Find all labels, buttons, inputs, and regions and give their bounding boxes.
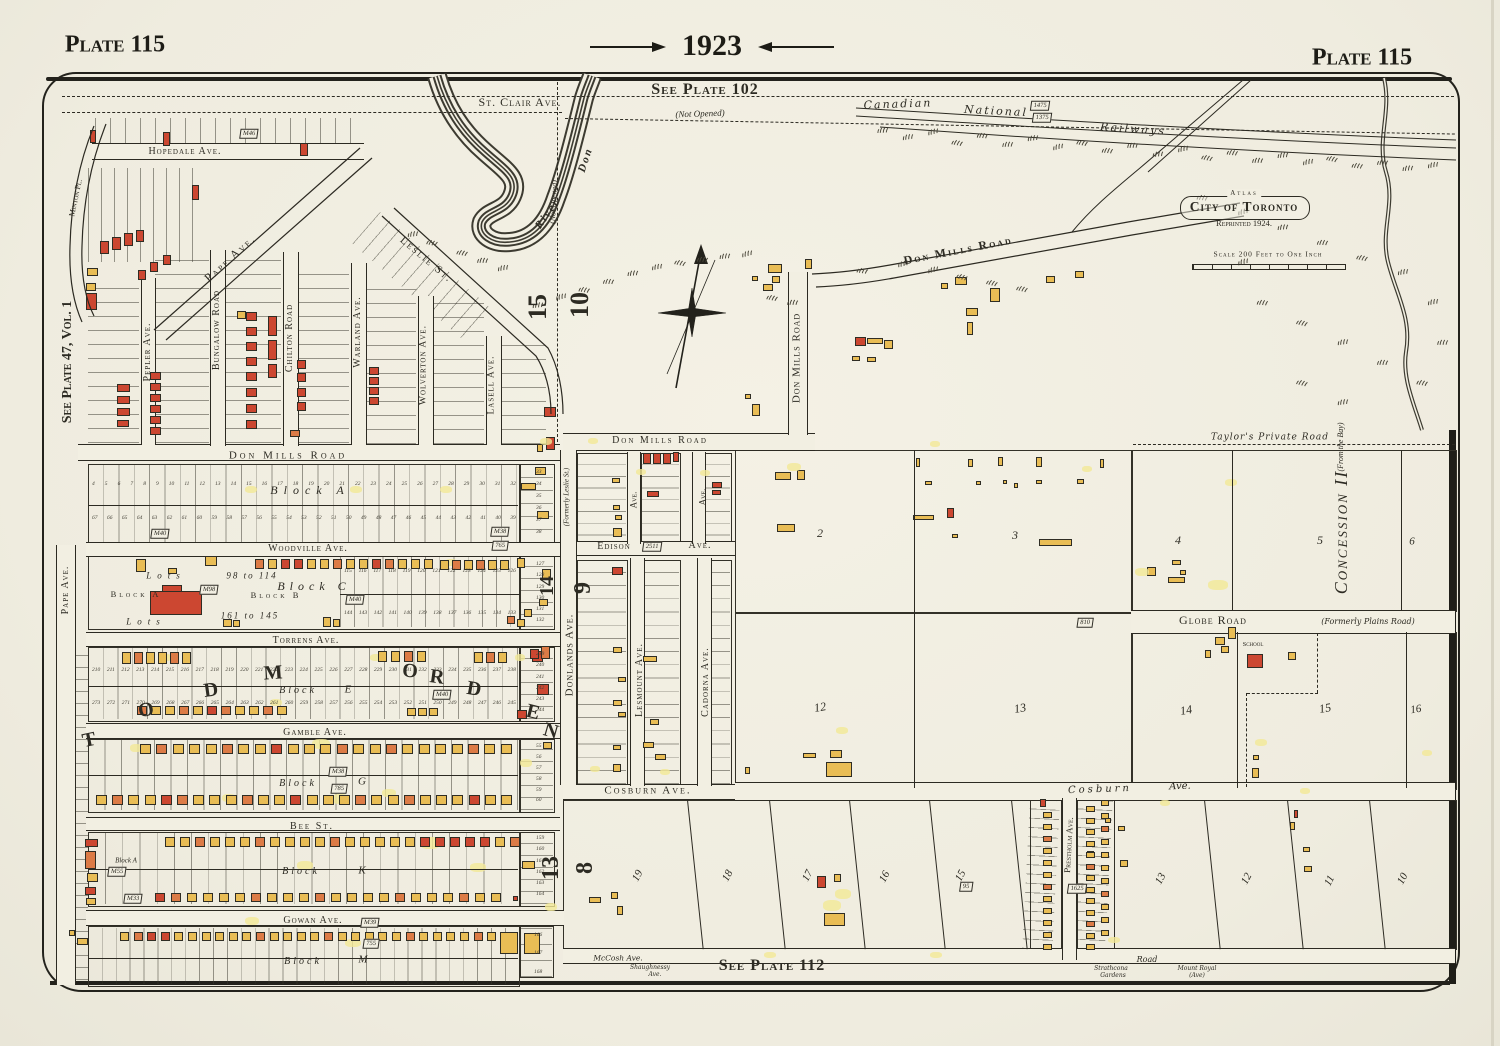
building-r <box>513 896 518 901</box>
marsh-tuft-icon <box>1053 143 1064 150</box>
building-r <box>117 384 130 392</box>
lot-number: 230 <box>389 668 397 674</box>
lot-number: 242 <box>536 686 544 692</box>
lot-number: 55 <box>536 744 542 750</box>
lot-number: 24 <box>386 482 392 488</box>
todmorden-letter: M <box>263 662 283 683</box>
building-y <box>1086 841 1095 847</box>
building-r <box>712 482 722 488</box>
globe-road-formerly-note: (Formerly Plains Road) <box>1321 618 1415 626</box>
compass-star <box>688 288 696 337</box>
building-y <box>258 795 269 805</box>
building-y <box>925 481 932 485</box>
lot-number: 49 <box>361 516 367 522</box>
lot-number: 166 <box>534 933 542 939</box>
block-outline <box>704 453 732 549</box>
marsh-tuft-icon <box>1278 152 1289 158</box>
building-o <box>134 652 143 664</box>
lot-number: 66 <box>107 516 113 522</box>
building-y <box>1101 800 1109 806</box>
building-o <box>177 795 188 805</box>
building-y <box>235 706 245 715</box>
lot-number: 26 <box>417 482 423 488</box>
building-y <box>333 619 340 627</box>
street-label-don-mills-road-center: Don Mills Road <box>612 436 708 446</box>
lot-number: 219 <box>225 668 233 674</box>
plan-number-15: 15 <box>525 294 551 320</box>
building-y <box>165 706 175 715</box>
street-label-cosburn-ave-west: Cosburn Ave. <box>604 786 691 797</box>
building-r <box>161 795 172 805</box>
building-y <box>1086 875 1095 881</box>
lot-number: 11 <box>184 482 189 488</box>
building-p <box>1160 800 1170 806</box>
plan-marker-box: 1475 <box>1030 101 1050 111</box>
building-r <box>246 404 257 413</box>
building-o <box>333 559 342 569</box>
building-r <box>465 837 475 847</box>
field-number: 6 <box>1409 537 1415 548</box>
building-y <box>69 930 75 936</box>
building-y <box>824 913 845 926</box>
road-label: Road <box>1137 956 1158 964</box>
building-y <box>613 505 620 510</box>
building-y <box>1043 920 1052 926</box>
building-r <box>297 360 306 369</box>
building-y <box>485 795 496 805</box>
building-p <box>836 727 848 734</box>
lot-number: 254 <box>374 701 382 707</box>
field-number: 4 <box>1175 534 1181 546</box>
building-r <box>1294 810 1298 818</box>
building-y <box>1086 898 1095 904</box>
lot-number: 23 <box>370 482 376 488</box>
lot-number: 245 <box>508 701 516 707</box>
building-r <box>268 340 277 360</box>
building-y <box>613 745 621 750</box>
lot-number: 15 <box>246 482 252 488</box>
lot-number-row: 555657585960 <box>536 744 542 804</box>
building-r <box>271 744 282 754</box>
building-r <box>450 837 460 847</box>
building-y <box>268 559 277 569</box>
building-y <box>288 744 299 754</box>
building-y <box>967 322 973 335</box>
building-y <box>941 283 948 289</box>
todmorden-letter: O <box>402 660 419 681</box>
building-y <box>378 932 387 941</box>
lot-number: 261 <box>270 701 278 707</box>
building-y <box>1101 852 1109 858</box>
building-y <box>277 706 287 715</box>
building-y <box>390 837 400 847</box>
building-y <box>913 515 934 520</box>
lot-number: 58 <box>226 516 232 522</box>
lot-number-row: 2102112122132142152162172182192202212222… <box>92 668 516 674</box>
building-o <box>330 837 340 847</box>
building-p <box>590 766 600 772</box>
lot-number: 28 <box>448 482 454 488</box>
building-y <box>242 932 251 941</box>
building-y <box>501 795 512 805</box>
block-g-label: Block <box>279 779 317 789</box>
lot-number-row: 115116117118119120121122123124125126 <box>344 569 516 575</box>
plan-marker-box: 755 <box>362 939 379 949</box>
stream-east <box>1383 78 1422 430</box>
lot-number: 54 <box>286 516 292 522</box>
lot-number: 7 <box>130 482 133 488</box>
lot-number: 38 <box>536 530 542 536</box>
lot-number: 120 <box>417 569 425 575</box>
building-y <box>1118 826 1125 831</box>
lots-label: Lots <box>146 572 186 581</box>
plan-marker-box: 95 <box>959 882 973 892</box>
building-y <box>146 652 155 664</box>
street-label-pape-ave-south: Pape Ave. <box>61 566 71 615</box>
marsh-tuft-icon <box>878 128 888 133</box>
block-e-label: Block <box>279 686 317 696</box>
building-y <box>1043 824 1052 830</box>
see-plate-47: See Plate 47, Vol. 1 <box>61 301 75 423</box>
building-y <box>460 932 469 941</box>
building-y <box>650 719 659 725</box>
building-y <box>347 893 357 902</box>
lot-number: 246 <box>493 701 501 707</box>
building-o <box>85 851 96 869</box>
lot-number: 134 <box>493 611 501 617</box>
building-o <box>179 706 189 715</box>
building-r <box>161 932 170 941</box>
building-y <box>238 744 249 754</box>
building-y <box>1101 839 1109 845</box>
lot-number-row: 2732722712702692682672662652642632622612… <box>92 701 516 707</box>
building-y <box>613 647 622 653</box>
see-plate-102: See Plate 102 <box>651 82 758 98</box>
building-y <box>1303 847 1310 852</box>
plan-number-14: 14 <box>537 576 557 596</box>
building-p <box>588 438 598 444</box>
lot-grid <box>367 276 416 444</box>
boundary-line <box>88 775 518 776</box>
building-r <box>480 837 490 847</box>
building-r <box>150 427 161 435</box>
lot-number: 56 <box>536 755 542 761</box>
building-o <box>1043 884 1052 890</box>
marsh-tuft-icon <box>603 279 613 284</box>
building-y <box>615 515 622 520</box>
building-p <box>1225 479 1237 486</box>
todmorden-letter: D <box>202 679 219 701</box>
lot-number: 143 <box>359 611 367 617</box>
building-y <box>235 893 245 902</box>
building-y <box>320 744 331 754</box>
lot-number: 133 <box>508 611 516 617</box>
dashed-boundary-line <box>1246 693 1247 787</box>
marsh-tuft-icon <box>1102 148 1113 154</box>
lot-number: 229 <box>374 668 382 674</box>
building-y <box>419 932 428 941</box>
block-m-label: Block <box>284 957 322 967</box>
building-y <box>990 288 1000 302</box>
street-label-mccosh-ave: McCosh Ave. <box>593 954 642 962</box>
building-r <box>1247 654 1263 668</box>
lot-number: 45 <box>421 516 427 522</box>
building-y <box>618 712 626 717</box>
lot-number: 247 <box>478 701 486 707</box>
building-p <box>1135 568 1149 576</box>
lot-number: 127 <box>536 562 544 568</box>
building-y <box>955 277 967 285</box>
building-y <box>443 893 453 902</box>
lot-number: 31 <box>495 482 501 488</box>
boundary-line <box>340 594 520 595</box>
plan-marker-box: M98 <box>199 585 219 595</box>
lot-number: 235 <box>463 668 471 674</box>
compass-star <box>658 308 726 317</box>
building-y <box>1100 459 1104 468</box>
building-y <box>613 764 621 772</box>
lot-number: 255 <box>359 701 367 707</box>
building-y <box>1086 806 1095 812</box>
lot-number: 8 <box>143 482 146 488</box>
building-p <box>245 917 259 925</box>
dashed-boundary-line <box>565 118 1455 135</box>
building-o <box>315 893 325 902</box>
building-y <box>613 700 622 706</box>
building-y <box>267 893 277 902</box>
building-r <box>246 327 257 336</box>
lot-number: 25 <box>402 482 408 488</box>
marsh-tuft-icon <box>1357 255 1368 262</box>
building-y <box>1086 852 1095 858</box>
building-y <box>1043 860 1052 866</box>
building-r <box>643 453 651 464</box>
building-o <box>156 744 167 754</box>
building-r <box>117 396 130 404</box>
lot-number: 130 <box>536 596 544 602</box>
building-y <box>498 652 507 663</box>
building-y <box>612 478 620 483</box>
marsh-tuft-icon <box>1428 162 1439 169</box>
marsh-tuft-icon <box>928 266 939 273</box>
street-label-minton-pl: Minton Pl. <box>68 179 84 218</box>
marsh-tuft-icon <box>628 270 639 276</box>
building-y <box>1036 457 1042 467</box>
building-o <box>486 652 495 663</box>
building-y <box>165 837 175 847</box>
building-p <box>1082 466 1092 472</box>
lot-number: 139 <box>418 611 426 617</box>
building-y <box>320 559 329 569</box>
building-r <box>297 373 306 382</box>
building-o <box>337 744 348 754</box>
lot-number: 240 <box>536 663 544 669</box>
lot-number-row: 333435363738 <box>536 470 542 536</box>
field-number: 5 <box>1317 534 1323 546</box>
lots-range-161-145: 161 to 145 <box>221 612 280 621</box>
building-y <box>1086 829 1095 835</box>
building-y <box>371 795 382 805</box>
building-y <box>189 744 200 754</box>
lot-number: 63 <box>152 516 158 522</box>
building-y <box>193 795 204 805</box>
street-label-don-mills-road-west: Don Mills Road <box>229 451 347 462</box>
lot-number: 266 <box>196 701 204 707</box>
boundary-line <box>914 450 915 612</box>
marsh-tuft-icon <box>1338 399 1349 405</box>
building-y <box>180 837 190 847</box>
lot-number: 227 <box>344 668 352 674</box>
stream-east <box>1383 78 1422 430</box>
block-k-letter: K <box>358 866 365 877</box>
building-o <box>355 795 366 805</box>
lot-number: 119 <box>403 569 411 575</box>
building-y <box>120 932 129 941</box>
building-r <box>663 453 671 464</box>
plan-marker-box: M39 <box>360 918 380 928</box>
marsh-tuft-icon <box>1317 240 1327 245</box>
lots-label: Lots <box>126 618 166 627</box>
building-p <box>470 863 486 872</box>
building-r <box>150 394 161 402</box>
lot-number: 61 <box>182 516 188 522</box>
lot-number: 265 <box>211 701 219 707</box>
building-y <box>274 795 285 805</box>
building-y <box>205 556 217 566</box>
building-y <box>1043 848 1052 854</box>
building-p <box>515 654 525 661</box>
building-y <box>1288 652 1296 660</box>
building-y <box>484 744 495 754</box>
building-y <box>219 893 229 902</box>
lot-number: 268 <box>166 701 174 707</box>
street-label-gowan-ave: Gowan Ave. <box>283 916 342 926</box>
building-y <box>1043 896 1052 902</box>
lot-number: 232 <box>419 668 427 674</box>
marsh-tuft-icon <box>1128 143 1138 148</box>
marsh-tuft-icon <box>1378 360 1388 365</box>
building-y <box>96 795 107 805</box>
lot-number: 217 <box>196 668 204 674</box>
building-y <box>353 744 364 754</box>
building-o <box>221 706 231 715</box>
building-r <box>150 416 161 424</box>
street-label-woodville-ave: Woodville Ave. <box>268 544 348 554</box>
building-y <box>968 459 973 467</box>
building-y <box>1043 932 1052 938</box>
lot-number: 167 <box>534 951 542 957</box>
building-o <box>171 893 181 902</box>
building-y <box>522 861 535 869</box>
lot-number: 271 <box>122 701 130 707</box>
lot-number: 35 <box>536 494 542 500</box>
building-r <box>100 241 109 254</box>
building-y <box>475 893 485 902</box>
building-o <box>507 616 515 624</box>
building-y <box>297 932 306 941</box>
block-g-letter: G <box>358 777 366 788</box>
lot-number: 121 <box>432 569 440 575</box>
building-o <box>222 744 233 754</box>
todmorden-letter: O <box>137 699 156 721</box>
building-r <box>147 932 156 941</box>
cartouche-title: City of Toronto <box>1190 199 1299 215</box>
building-y <box>86 898 96 905</box>
lot-number: 258 <box>315 701 323 707</box>
lot-number: 52 <box>316 516 322 522</box>
lot-grid <box>502 338 546 444</box>
building-o <box>459 893 469 902</box>
building-r <box>544 407 556 417</box>
building-y <box>182 652 191 664</box>
boundary-line <box>914 612 915 788</box>
building-r <box>712 490 721 495</box>
marsh-tuft-icon <box>720 253 731 259</box>
building-r <box>162 585 182 592</box>
building-r <box>136 230 144 242</box>
marsh-tuft-icon <box>1178 145 1189 152</box>
building-y <box>209 795 220 805</box>
block-outline <box>735 612 1133 790</box>
building-y <box>830 750 842 758</box>
building-r <box>112 237 121 250</box>
lot-number: 34 <box>536 482 542 488</box>
building-o <box>404 795 415 805</box>
street-label-bee-st: Bee St. <box>290 822 334 832</box>
building-r <box>150 405 161 413</box>
block-outline <box>563 800 1457 950</box>
building-y <box>206 744 217 754</box>
lot-number: 33 <box>536 470 542 476</box>
building-r <box>420 837 430 847</box>
lot-number: 47 <box>391 516 397 522</box>
building-y <box>543 742 552 749</box>
boundary-line <box>1401 450 1402 610</box>
lot-number: 262 <box>255 701 263 707</box>
marsh-tuft-icon <box>1338 339 1349 345</box>
marsh-tuft-icon <box>1028 135 1039 141</box>
street-label-edison-ave: Edison <box>597 542 631 552</box>
building-y <box>351 932 360 941</box>
block-a-label: Block A <box>270 484 349 496</box>
building-r <box>246 388 257 397</box>
lot-number: 221 <box>255 668 263 674</box>
building-r <box>192 185 199 200</box>
building-y <box>418 708 427 716</box>
building-p <box>1208 580 1228 590</box>
building-y <box>419 744 430 754</box>
lot-number: 57 <box>241 516 247 522</box>
building-y <box>867 338 883 344</box>
building-y <box>1003 480 1007 484</box>
building-p <box>835 889 851 899</box>
building-y <box>122 652 131 664</box>
plan-marker-box: 1375 <box>1032 113 1052 123</box>
lot-number: 239 <box>536 652 544 658</box>
building-y <box>1228 627 1236 639</box>
lot-number: 263 <box>240 701 248 707</box>
building-y <box>215 932 224 941</box>
marsh-tuft-icon <box>1227 150 1238 156</box>
building-y <box>643 742 654 748</box>
building-r <box>369 367 379 375</box>
lot-number: 60 <box>536 798 542 804</box>
building-y <box>270 932 279 941</box>
lot-number: 53 <box>301 516 307 522</box>
building-r <box>673 452 679 462</box>
lot-number: 118 <box>388 569 396 575</box>
building-y <box>452 744 463 754</box>
